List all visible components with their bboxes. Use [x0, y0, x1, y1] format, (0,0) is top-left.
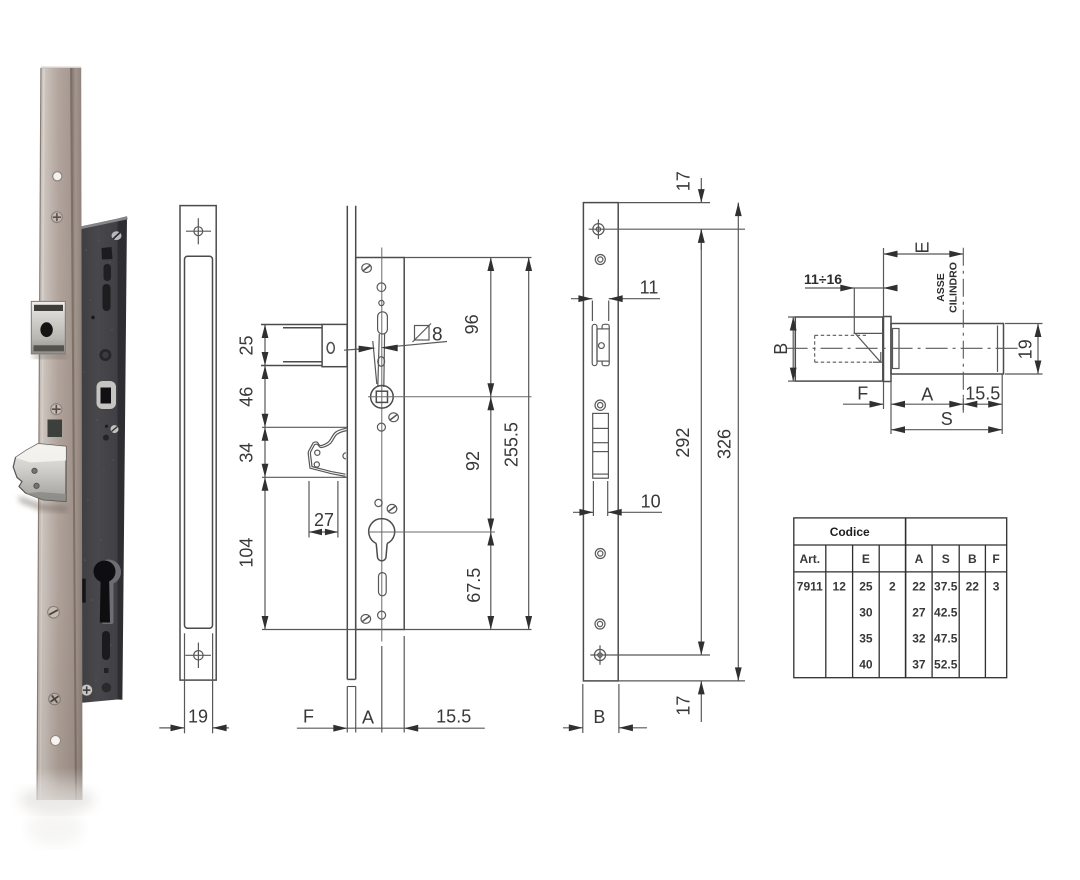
- svg-text:27: 27: [314, 510, 334, 530]
- svg-text:255.5: 255.5: [502, 422, 522, 467]
- svg-text:F: F: [303, 707, 314, 727]
- svg-text:8: 8: [432, 325, 443, 346]
- svg-text:32: 32: [912, 632, 926, 646]
- svg-text:34: 34: [237, 443, 257, 463]
- svg-text:F: F: [857, 384, 868, 404]
- svg-text:E: E: [913, 241, 933, 253]
- svg-text:47.5: 47.5: [934, 632, 958, 646]
- svg-text:10: 10: [641, 492, 661, 512]
- svg-text:B: B: [593, 707, 605, 727]
- svg-text:46: 46: [237, 387, 257, 407]
- svg-text:Art.: Art.: [799, 552, 820, 566]
- svg-text:15.5: 15.5: [436, 707, 471, 727]
- svg-text:30: 30: [859, 606, 873, 620]
- svg-text:ASSE: ASSE: [935, 273, 947, 302]
- svg-text:Codice: Codice: [830, 525, 870, 539]
- svg-text:52.5: 52.5: [934, 658, 958, 672]
- svg-text:A: A: [362, 708, 374, 728]
- svg-text:E: E: [862, 552, 870, 566]
- svg-text:104: 104: [237, 538, 257, 568]
- svg-text:17: 17: [674, 696, 694, 716]
- svg-text:37: 37: [912, 658, 926, 672]
- svg-text:12: 12: [833, 580, 847, 594]
- svg-text:11÷16: 11÷16: [804, 271, 842, 287]
- svg-text:19: 19: [1016, 339, 1036, 359]
- svg-text:B: B: [968, 552, 977, 566]
- svg-text:25: 25: [237, 335, 257, 355]
- svg-text:35: 35: [859, 632, 873, 646]
- svg-text:F: F: [992, 552, 999, 566]
- svg-text:A: A: [915, 552, 924, 566]
- svg-text:40: 40: [859, 658, 873, 672]
- svg-text:92: 92: [463, 451, 483, 471]
- svg-text:67.5: 67.5: [464, 568, 484, 603]
- svg-text:2: 2: [889, 580, 896, 594]
- svg-text:326: 326: [714, 429, 734, 459]
- svg-text:A: A: [921, 385, 933, 405]
- svg-text:292: 292: [673, 428, 693, 458]
- svg-text:3: 3: [993, 580, 1000, 594]
- svg-text:37.5: 37.5: [934, 580, 958, 594]
- svg-text:S: S: [942, 552, 950, 566]
- svg-text:17: 17: [674, 171, 694, 191]
- svg-text:25: 25: [859, 580, 873, 594]
- svg-text:S: S: [941, 409, 953, 429]
- svg-text:22: 22: [912, 580, 926, 594]
- svg-text:19: 19: [188, 707, 208, 727]
- svg-text:7911: 7911: [797, 580, 823, 594]
- svg-text:CILINDRO: CILINDRO: [948, 262, 960, 313]
- svg-text:42.5: 42.5: [934, 606, 958, 620]
- svg-text:27: 27: [912, 606, 926, 620]
- svg-text:22: 22: [966, 580, 980, 594]
- svg-text:15.5: 15.5: [965, 384, 1000, 404]
- svg-text:96: 96: [462, 314, 482, 334]
- svg-text:11: 11: [640, 278, 659, 298]
- svg-text:B: B: [771, 343, 791, 355]
